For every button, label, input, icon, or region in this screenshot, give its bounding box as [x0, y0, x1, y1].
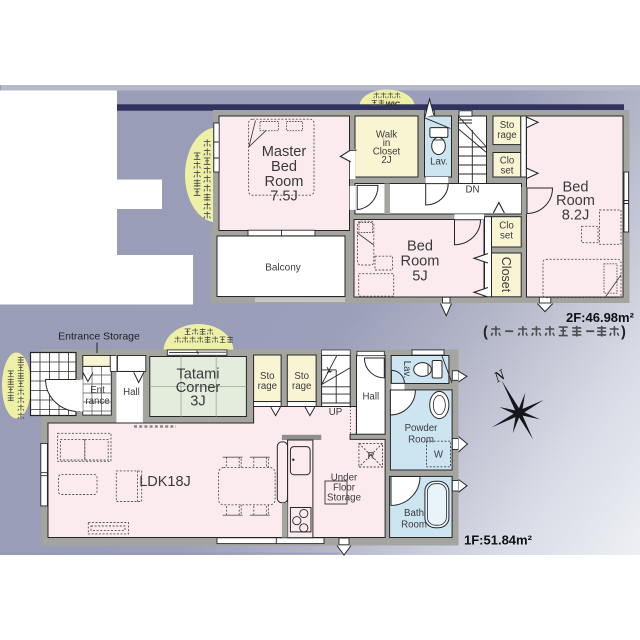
svg-text:7.5J: 7.5J — [270, 189, 298, 205]
svg-text:1F:51.84m²: 1F:51.84m² — [464, 533, 533, 548]
svg-text:Hall: Hall — [123, 387, 140, 398]
svg-text:Closet: Closet — [499, 257, 513, 293]
svg-text:Bath: Bath — [404, 508, 424, 519]
svg-text:Storage: Storage — [327, 493, 361, 504]
svg-text:Room: Room — [401, 254, 440, 270]
svg-text:Bed: Bed — [407, 239, 433, 255]
svg-text:Room: Room — [408, 435, 434, 446]
svg-text:R: R — [368, 451, 375, 462]
svg-text:(: ( — [483, 325, 488, 341]
svg-text:rage: rage — [292, 381, 311, 392]
svg-text:2J: 2J — [381, 155, 391, 166]
svg-text:3J: 3J — [190, 394, 205, 410]
svg-text:DN: DN — [466, 185, 480, 196]
svg-text:rance: rance — [85, 396, 109, 407]
svg-text:8.2J: 8.2J — [562, 208, 590, 224]
svg-text:set: set — [501, 166, 514, 177]
svg-text:Bed: Bed — [271, 159, 297, 175]
svg-text:Balcony: Balcony — [265, 263, 301, 274]
svg-text:5J: 5J — [412, 269, 427, 285]
svg-text:Entrance Storage: Entrance Storage — [58, 331, 140, 343]
svg-text:2F:46.98m²: 2F:46.98m² — [566, 310, 635, 325]
svg-text:Room: Room — [401, 520, 427, 531]
svg-text:WIC: WIC — [386, 100, 401, 109]
svg-text:set: set — [500, 231, 513, 242]
svg-text:Hall: Hall — [362, 392, 379, 403]
svg-text:LDK18J: LDK18J — [139, 474, 191, 490]
svg-text:Master: Master — [262, 144, 307, 160]
svg-text:): ) — [621, 325, 626, 341]
svg-text:Powder: Powder — [405, 423, 439, 434]
svg-text:Lav.: Lav. — [401, 361, 412, 379]
svg-text:UP: UP — [329, 407, 342, 418]
svg-text:Ent: Ent — [90, 385, 105, 396]
svg-text:rage: rage — [497, 130, 516, 141]
svg-text:Lav.: Lav. — [430, 157, 448, 168]
svg-text:rage: rage — [258, 381, 277, 392]
svg-text:W: W — [434, 450, 444, 461]
